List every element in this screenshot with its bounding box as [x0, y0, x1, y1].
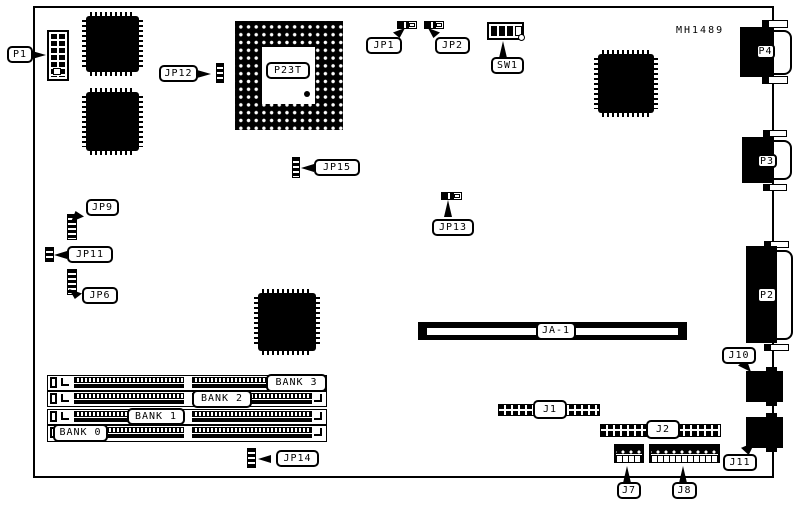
callout-jp12-tail [197, 70, 211, 78]
jumper-jp15 [292, 157, 300, 178]
callout-jp15-tail [301, 164, 314, 172]
ic-chip-top-left-2 [82, 88, 143, 155]
callout-j11: J11 [723, 454, 757, 471]
callout-jp2: JP2 [435, 37, 470, 54]
simm-slot-bank1 [47, 409, 327, 425]
label-bank0: BANK 0 [53, 424, 108, 442]
label-p3: P3 [757, 154, 777, 168]
callout-jp11-tail [54, 251, 67, 259]
jumper-jp1 [397, 21, 417, 29]
jumper-jp2 [424, 21, 444, 29]
jumper-jp14 [247, 448, 256, 468]
callout-j7-tail [623, 466, 631, 483]
connector-p4-dsub [772, 30, 792, 75]
callout-jp1: JP1 [366, 37, 402, 54]
callout-ja1: JA-1 [536, 322, 576, 340]
callout-jp15: JP15 [314, 159, 360, 176]
callout-jp11: JP11 [67, 246, 113, 263]
label-bank3: BANK 3 [266, 374, 327, 392]
connector-j11 [746, 417, 783, 448]
callout-p23t: P23T [266, 62, 310, 79]
connector-p2-dsub [775, 250, 793, 340]
label-bank2: BANK 2 [192, 390, 252, 408]
motherboard-diagram: MH1489 P1 JP12 P23T JP1 JP2 SW1 P4 P3 P2… [0, 0, 796, 511]
callout-j2: J2 [646, 420, 680, 439]
connector-p3-tab-top [763, 130, 787, 137]
dip-switch-sw1 [487, 22, 524, 40]
ic-chip-top-left-1 [82, 12, 143, 76]
callout-j7: J7 [617, 482, 641, 499]
jumper-jp11 [45, 247, 54, 262]
callout-j8: J8 [672, 482, 697, 499]
label-p4: P4 [756, 44, 775, 59]
ic-chip-top-right [594, 50, 658, 117]
label-p2: P2 [757, 287, 777, 303]
callout-jp9: JP9 [86, 199, 119, 216]
callout-sw1: SW1 [491, 57, 524, 74]
ic-chip-center [254, 289, 320, 355]
callout-jp14-tail [258, 455, 271, 463]
part-number: MH1489 [676, 25, 724, 36]
connector-j7 [614, 444, 644, 463]
connector-p1 [47, 30, 69, 81]
callout-j1: J1 [533, 400, 567, 419]
callout-jp12: JP12 [159, 65, 198, 82]
connector-p4-tab-bottom [762, 76, 788, 84]
simm-slot-bank2 [47, 391, 327, 407]
callout-jp13: JP13 [432, 219, 474, 236]
connector-p2-tab-bottom [764, 344, 789, 351]
callout-p1: P1 [7, 46, 33, 63]
jumper-jp12 [216, 63, 224, 83]
callout-p1-tail [32, 51, 46, 59]
connector-j10 [746, 371, 783, 402]
socket-pga-pin1-dot [304, 91, 310, 97]
connector-j8 [649, 444, 720, 463]
callout-jp14: JP14 [276, 450, 319, 467]
callout-jp6: JP6 [82, 287, 118, 304]
label-bank1: BANK 1 [127, 408, 185, 425]
callout-jp13-tail [444, 200, 452, 217]
connector-p3-tab-bottom [763, 184, 787, 191]
callout-j8-tail [679, 466, 687, 483]
callout-j10: J10 [722, 347, 756, 364]
jumper-jp13 [441, 192, 462, 200]
callout-sw1-tail [499, 41, 507, 58]
